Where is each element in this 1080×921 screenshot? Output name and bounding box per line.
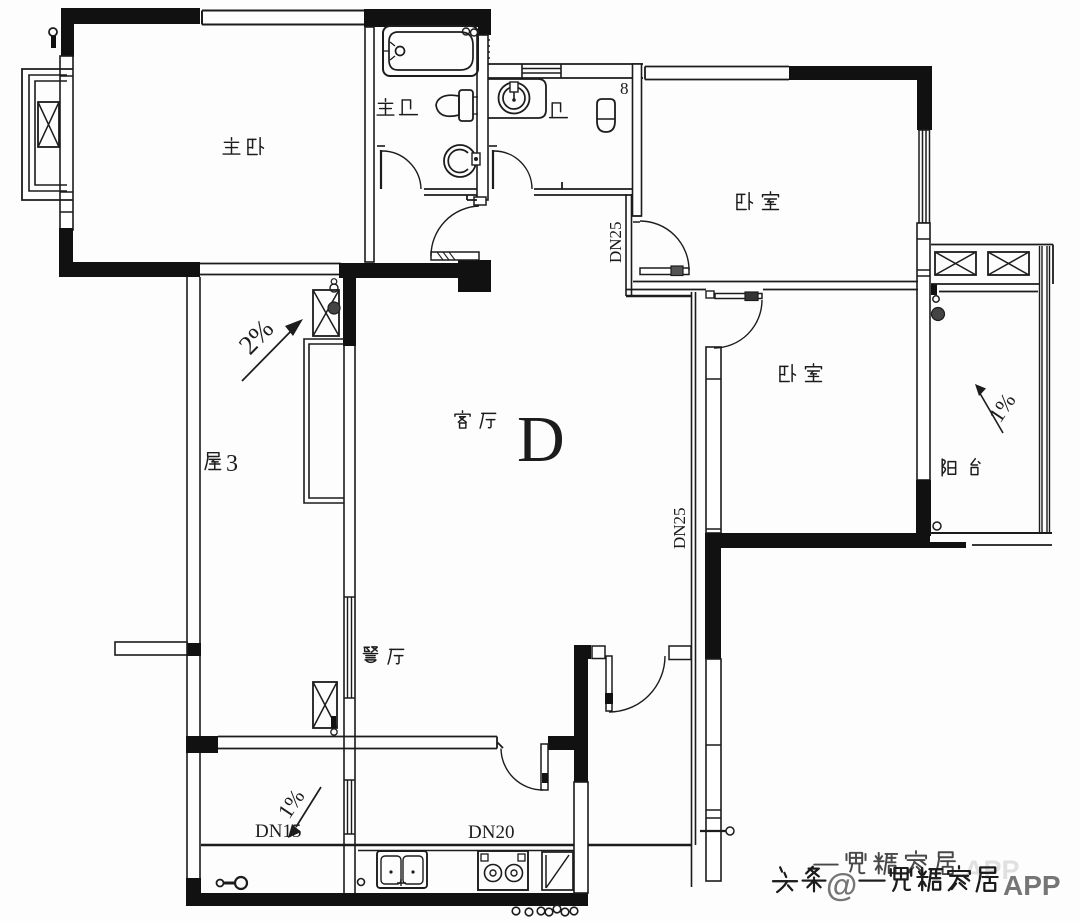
svg-text:DN25: DN25 bbox=[670, 507, 689, 549]
svg-text:@: @ bbox=[826, 867, 857, 903]
svg-text:D: D bbox=[517, 403, 565, 476]
svg-text:DN20: DN20 bbox=[468, 822, 514, 843]
svg-text:3: 3 bbox=[226, 451, 238, 477]
svg-text:DN15: DN15 bbox=[255, 821, 301, 842]
svg-text:8: 8 bbox=[620, 79, 629, 98]
svg-text:DN25: DN25 bbox=[606, 221, 625, 263]
svg-text:APP: APP bbox=[1003, 870, 1061, 901]
